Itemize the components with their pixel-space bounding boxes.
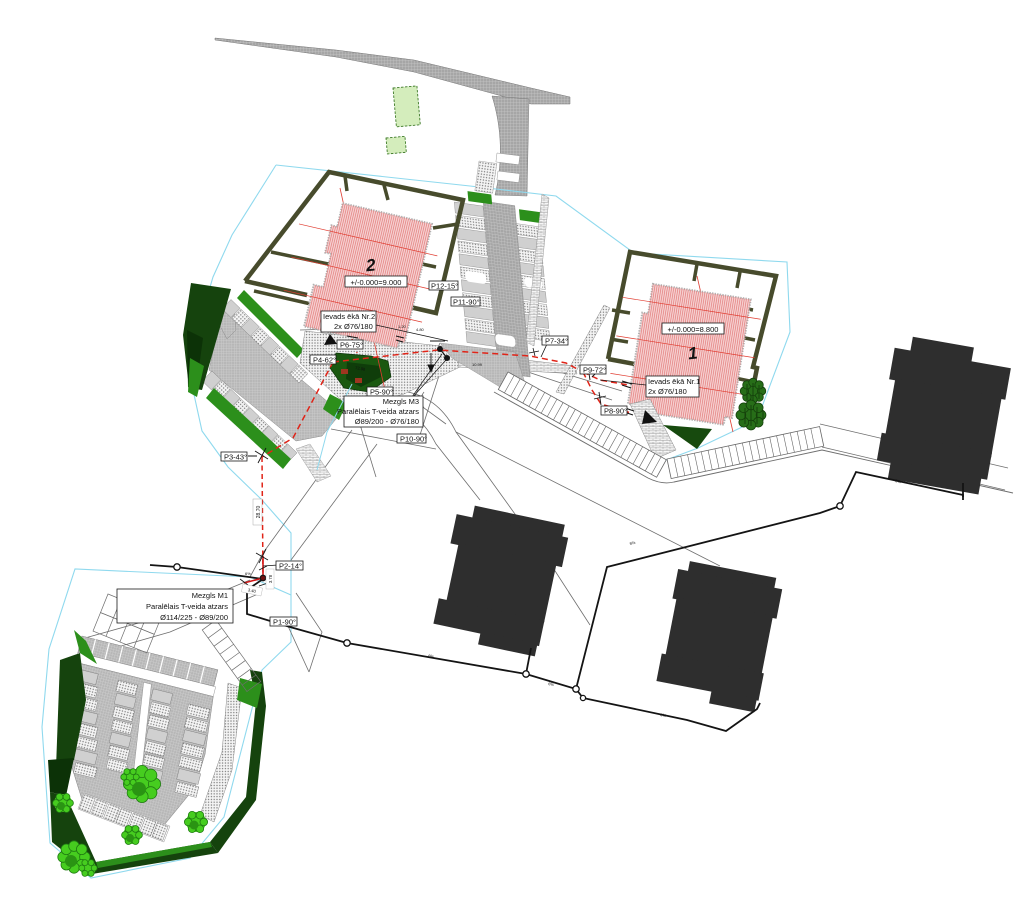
- svg-text:10.99: 10.99: [472, 362, 483, 367]
- svg-text:1.20: 1.20: [398, 324, 407, 329]
- svg-text:Ø89/200 - Ø76/180: Ø89/200 - Ø76/180: [355, 417, 419, 426]
- svg-text:P6-75°: P6-75°: [340, 341, 363, 350]
- svg-text:1: 1: [687, 343, 698, 363]
- svg-text:Mezgls M1: Mezgls M1: [192, 591, 228, 600]
- svg-text:2x Ø76/180: 2x Ø76/180: [334, 322, 373, 331]
- svg-text:Paralēlais T-veida atzars: Paralēlais T-veida atzars: [337, 407, 419, 416]
- svg-text:P3-43°: P3-43°: [224, 453, 247, 462]
- svg-text:P10-90°: P10-90°: [400, 435, 427, 444]
- svg-text:4.80: 4.80: [416, 327, 425, 332]
- svg-text:Paralēlais T-veida atzars: Paralēlais T-veida atzars: [146, 602, 228, 611]
- svg-text:3.78: 3.78: [268, 574, 273, 583]
- svg-text:2x Ø76/180: 2x Ø76/180: [648, 387, 687, 396]
- svg-text:+/-0.000=8.800: +/-0.000=8.800: [668, 325, 719, 334]
- svg-text:P9-72°: P9-72°: [583, 366, 606, 375]
- svg-text:P4-62°: P4-62°: [313, 356, 336, 365]
- svg-text:+/-0.000=9.000: +/-0.000=9.000: [351, 278, 402, 287]
- svg-text:P1-90°: P1-90°: [273, 618, 296, 627]
- svg-text:28.70: 28.70: [256, 506, 262, 519]
- svg-text:P2-14°: P2-14°: [279, 562, 302, 571]
- svg-text:P7-34°: P7-34°: [545, 337, 568, 346]
- svg-text:Mezgls M3: Mezgls M3: [383, 397, 419, 406]
- svg-text:P8-90°: P8-90°: [604, 407, 627, 416]
- svg-text:Ievads ēkā Nr.2: Ievads ēkā Nr.2: [323, 312, 375, 321]
- svg-text:6%: 6%: [245, 571, 251, 576]
- svg-text:P5-90°: P5-90°: [370, 388, 393, 397]
- svg-text:P11-90°: P11-90°: [453, 298, 480, 307]
- svg-text:Ø114/225 - Ø89/200: Ø114/225 - Ø89/200: [160, 613, 228, 622]
- svg-text:P12-15°: P12-15°: [431, 282, 458, 291]
- svg-text:Ievads ēkā Nr.1: Ievads ēkā Nr.1: [648, 377, 700, 386]
